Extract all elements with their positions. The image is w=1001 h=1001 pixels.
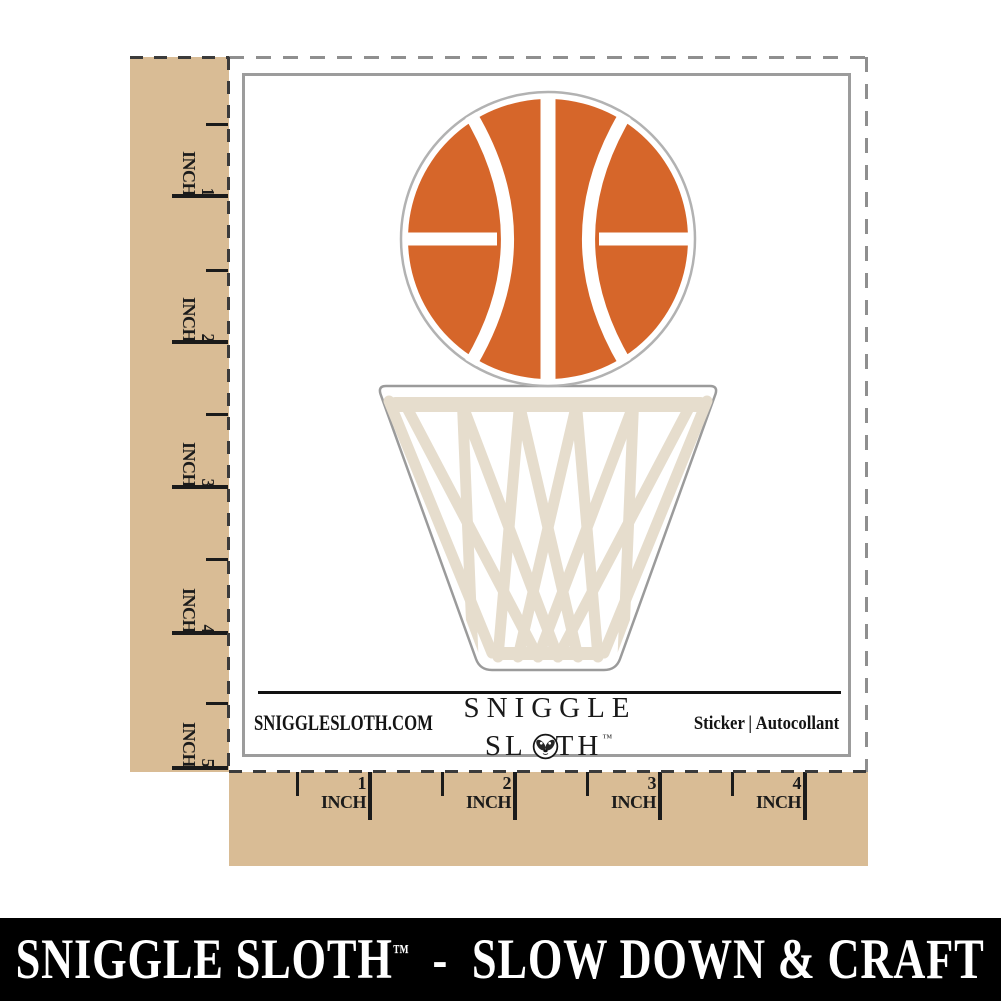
dashed-border-left <box>227 57 230 772</box>
ruler-label-3-inch: 3INCH <box>574 774 656 812</box>
ruler-label-2-inch: 2INCH <box>179 270 217 342</box>
ball-left-stripe <box>407 233 497 246</box>
ruler-label-1-inch: 1INCH <box>179 124 217 196</box>
brand-banner: SNIGGLE SLOTH™ - SLOW DOWN & CRAFT <box>0 918 1001 1001</box>
basketball-hoop-sticker <box>368 83 728 683</box>
sloth-face-icon <box>528 733 555 760</box>
ball-right-stripe <box>599 233 689 246</box>
ruler-label-1-inch: 1INCH <box>284 774 366 812</box>
banner-text: SNIGGLE SLOTH™ - SLOW DOWN & CRAFT <box>16 931 985 988</box>
ruler-label-4-inch: 4INCH <box>719 774 801 812</box>
ball-center-stripe <box>541 99 556 379</box>
dashed-border-top-over-ruler <box>130 56 229 59</box>
basketball-icon <box>401 92 695 386</box>
ruler-label-4-inch: 4INCH <box>179 561 217 633</box>
trademark-symbol: ™ <box>393 942 409 964</box>
ruler-tick <box>513 772 517 820</box>
ruler-label-2-inch: 2INCH <box>429 774 511 812</box>
product-type-label: Sticker|Autocollant <box>694 713 839 735</box>
dashed-border-top <box>229 56 868 59</box>
dashed-border-bottom <box>229 770 868 773</box>
product-mockup: 1INCH 2INCH 3INCH 4INCH 5INCH 1INCH 2INC… <box>0 0 1001 1001</box>
sticker-sheet: SNIGGLESLOTH.COM SNIGGLE SLTH™ Sticker|A… <box>242 73 851 757</box>
ruler-tick <box>368 772 372 820</box>
trademark-symbol: ™ <box>602 733 612 744</box>
net-rim <box>388 397 708 412</box>
dashed-border-right <box>865 57 868 772</box>
basketball-net-icon <box>380 386 716 670</box>
separator: | <box>748 713 752 734</box>
ruler-label-3-inch: 3INCH <box>179 415 217 487</box>
ruler-label-5-inch: 5INCH <box>179 695 217 767</box>
net-bottom-cord <box>491 647 605 660</box>
ruler-tick <box>658 772 662 820</box>
ruler-tick <box>803 772 807 820</box>
